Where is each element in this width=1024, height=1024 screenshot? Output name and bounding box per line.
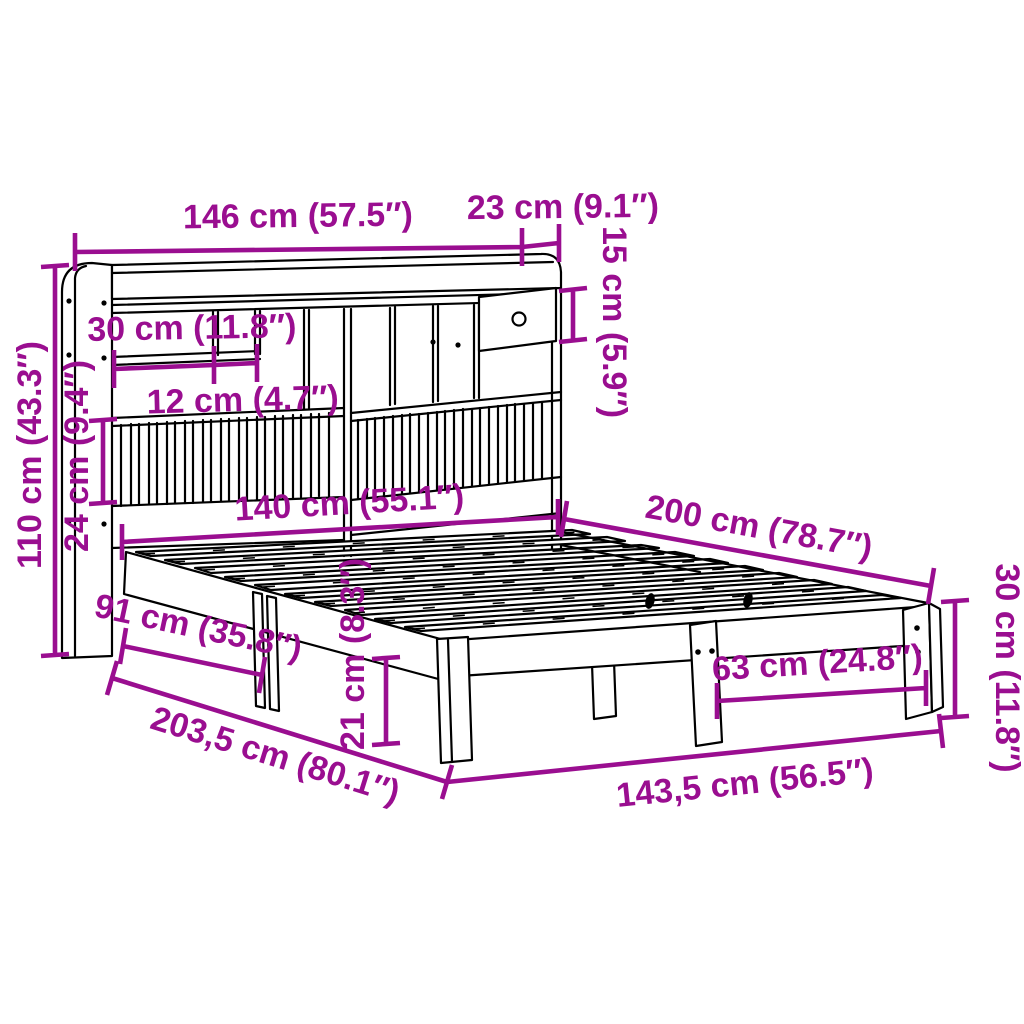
dimension-diagram-page: 146 cm (57.5″) 23 cm (9.1″) 15 cm (5.9″)…: [0, 0, 1024, 1024]
headboard-top-rail: [112, 254, 561, 299]
dowel-dot: [101, 300, 106, 305]
screw-dot: [914, 625, 920, 631]
dimension-label: 110 cm (43.3″): [11, 341, 49, 569]
dowel-dot: [66, 352, 71, 357]
rear-leg: [592, 661, 616, 719]
right-shelf: [351, 392, 561, 421]
dimension-label: 140 cm (55.1″): [234, 477, 466, 528]
dimension-label: 30 cm (11.8″): [988, 563, 1024, 772]
dimension-label: 12 cm (4.7″): [146, 378, 339, 421]
dowel-dot: [101, 521, 106, 526]
dimension-label: 24 cm (9.4″): [58, 360, 96, 552]
dimension-drawer-height: 15 cm (5.9″): [559, 226, 633, 418]
dimension-frame-height: 30 cm (11.8″): [941, 563, 1024, 772]
drawer: [479, 288, 556, 351]
foot-leg-near: [437, 637, 472, 763]
dimension-leg-spacing: 63 cm (24.8″): [711, 638, 926, 719]
dimension-shelf-gap: 12 cm (4.7″): [146, 344, 339, 422]
foot-leg-far-side: [929, 603, 943, 712]
screw-dot: [695, 649, 701, 655]
dimension-label: 21 cm (8.3″): [334, 558, 372, 750]
dowel-dot: [66, 298, 71, 303]
bed-dimension-diagram: 146 cm (57.5″) 23 cm (9.1″) 15 cm (5.9″)…: [0, 0, 1024, 1024]
dimension-label: 23 cm (9.1″): [467, 187, 659, 227]
dimension-shelf-compartment: 30 cm (11.8″): [87, 307, 297, 388]
dimension-total-length: 203,5 cm (80.1″): [107, 661, 452, 812]
dowel-dot: [430, 339, 435, 344]
dimension-label: 30 cm (11.8″): [87, 307, 297, 349]
dowel-dot: [101, 355, 106, 360]
dimension-label: 146 cm (57.5″): [183, 196, 413, 237]
dimension-label: 15 cm (5.9″): [595, 226, 633, 418]
dowel-dot: [455, 342, 460, 347]
